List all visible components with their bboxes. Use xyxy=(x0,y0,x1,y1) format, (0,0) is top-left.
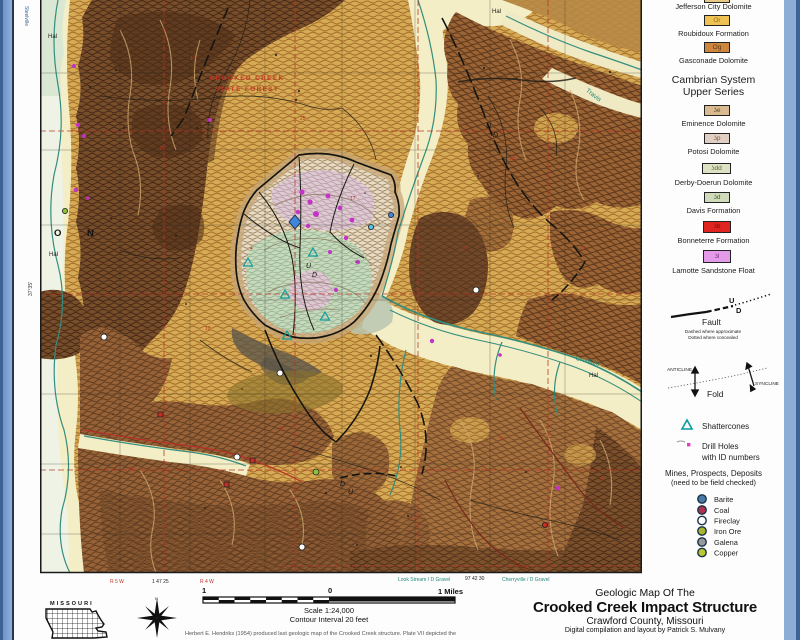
svg-text:R 4 W: R 4 W xyxy=(200,579,214,585)
svg-text:N: N xyxy=(155,596,158,601)
svg-text:D: D xyxy=(493,132,498,139)
svg-text:Galena: Galena xyxy=(714,538,739,547)
svg-text:MISSOURI: MISSOURI xyxy=(50,601,94,607)
svg-text:Hal: Hal xyxy=(589,373,598,379)
svg-text:Hal: Hal xyxy=(49,252,58,258)
svg-text:Dotted where concealed: Dotted where concealed xyxy=(688,335,738,340)
svg-text:with ID numbers: with ID numbers xyxy=(701,453,760,462)
svg-text:CROOKED CREEK: CROOKED CREEK xyxy=(209,75,284,82)
svg-text:0: 0 xyxy=(328,586,332,595)
svg-text:4: 4 xyxy=(410,516,413,522)
svg-text:Drill Holes: Drill Holes xyxy=(702,442,738,451)
svg-text:Barite: Barite xyxy=(714,495,733,504)
svg-text:Look Stream / D Gravel: Look Stream / D Gravel xyxy=(398,577,450,583)
svg-text:Fireclay: Fireclay xyxy=(714,517,740,526)
svg-text:4: 4 xyxy=(250,246,253,252)
svg-text:12: 12 xyxy=(460,246,466,252)
svg-text:8: 8 xyxy=(280,426,283,432)
svg-text:Hal: Hal xyxy=(492,9,501,15)
svg-text:Hal: Hal xyxy=(48,34,57,40)
svg-text:Contour Interval 20 feet: Contour Interval 20 feet xyxy=(290,615,369,624)
svg-text:12: 12 xyxy=(580,246,586,252)
svg-text:12: 12 xyxy=(205,326,211,332)
svg-text:1: 1 xyxy=(202,586,206,595)
svg-text:17: 17 xyxy=(350,196,356,202)
svg-text:1 Miles: 1 Miles xyxy=(438,587,463,596)
svg-text:Shattercones: Shattercones xyxy=(702,422,749,431)
svg-text:D: D xyxy=(340,481,345,488)
svg-text:8: 8 xyxy=(160,146,163,152)
svg-text:SYNCLINE: SYNCLINE xyxy=(755,381,779,387)
svg-text:97 42 30: 97 42 30 xyxy=(465,576,485,582)
svg-text:Dashed where approximate: Dashed where approximate xyxy=(685,329,742,334)
svg-text:Scale 1:24,000: Scale 1:24,000 xyxy=(304,606,354,615)
svg-text:Iron Ore: Iron Ore xyxy=(714,527,741,536)
svg-text:O: O xyxy=(54,228,61,239)
svg-text:1 47 25: 1 47 25 xyxy=(152,579,169,585)
svg-text:STATE FOREST: STATE FOREST xyxy=(215,86,280,93)
svg-text:Fold: Fold xyxy=(707,389,724,399)
svg-text:Copper: Copper xyxy=(714,549,739,558)
svg-text:N: N xyxy=(87,228,94,239)
svg-text:8: 8 xyxy=(130,466,133,472)
svg-text:25: 25 xyxy=(300,116,306,122)
svg-text:Cherryville / D Gravel: Cherryville / D Gravel xyxy=(502,577,550,583)
svg-text:R 5 W: R 5 W xyxy=(110,579,124,585)
svg-text:ANTICLINE: ANTICLINE xyxy=(667,367,692,373)
svg-text:U: U xyxy=(729,296,734,305)
svg-text:31: 31 xyxy=(510,156,516,162)
svg-text:4: 4 xyxy=(600,476,603,482)
svg-text:17: 17 xyxy=(190,56,196,62)
svg-text:Fault: Fault xyxy=(702,317,722,327)
svg-text:D: D xyxy=(736,306,742,315)
svg-text:Coal: Coal xyxy=(714,506,730,515)
svg-text:8: 8 xyxy=(500,436,503,442)
svg-text:D: D xyxy=(312,272,317,279)
